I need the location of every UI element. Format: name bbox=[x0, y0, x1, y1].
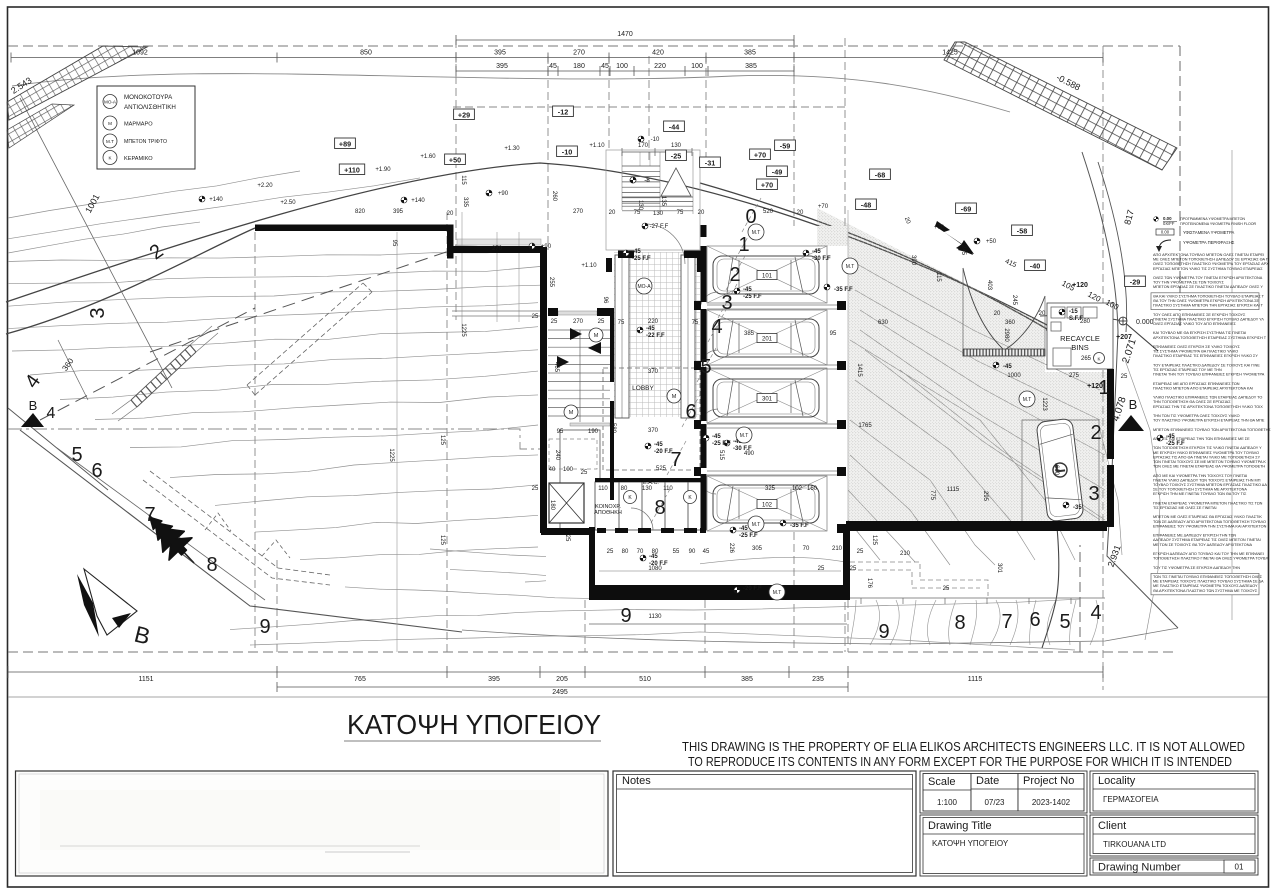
svg-text:ΜΕ ΕΤΑΙΡΕΙΑΣ ΤΟΙΧΟΥΣ ΠΛΑΣΤΙΚΟ: ΜΕ ΕΤΑΙΡΕΙΑΣ ΤΟΙΧΟΥΣ ΠΛΑΣΤΙΚΟ ΤΟΥΒΛΟ ΣΥΣ… bbox=[1153, 580, 1264, 584]
svg-text:ΓΙΝΕΤΑΙ ΥΛΙΚΟ ΔΑΠΕΔΟΥ ΤΩΝ ΤΟΙΧ: ΓΙΝΕΤΑΙ ΥΛΙΚΟ ΔΑΠΕΔΟΥ ΤΩΝ ΤΟΙΧΟΥΣ ΕΤΑΙΡΕ… bbox=[1153, 478, 1261, 482]
svg-text:ΤΙΣ ΕΡΓΑΣΙΑΣ ΕΤΑΙΡΕΙΑΣ ΤΟΥ ΜΕ: ΤΙΣ ΕΡΓΑΣΙΑΣ ΕΤΑΙΡΕΙΑΣ ΤΟΥ ΜΕ ΤΗΝ bbox=[1153, 368, 1222, 372]
svg-text:+120: +120 bbox=[1072, 282, 1088, 289]
svg-text:ΚΕΡΑΜΙΚΟ: ΚΕΡΑΜΙΚΟ bbox=[124, 156, 153, 162]
svg-text:245: 245 bbox=[1011, 295, 1017, 306]
svg-text:1115: 1115 bbox=[968, 676, 983, 683]
svg-text:ΤΩΝ ΤΟΠΟΘΕΤΗΣΗ ΕΓΚΡΙΣΗ ΤΙΣ ΥΛΙ: ΤΩΝ ΤΟΠΟΘΕΤΗΣΗ ΕΓΚΡΙΣΗ ΤΙΣ ΥΛΙΚΟ ΓΙΝΕΤΑΙ… bbox=[1153, 446, 1262, 450]
svg-text:190: 190 bbox=[588, 429, 599, 435]
svg-text:226: 226 bbox=[728, 543, 734, 554]
svg-text:270: 270 bbox=[492, 246, 503, 252]
svg-text:3: 3 bbox=[1088, 483, 1099, 505]
svg-text:515: 515 bbox=[718, 450, 724, 461]
svg-text:ΑΡΧΙΤΕΚΤΟΝΑ ΤΟΠΟΘΕΤΗΣΗ ΕΤΑΙΡΕΙ: ΑΡΧΙΤΕΚΤΟΝΑ ΤΟΠΟΘΕΤΗΣΗ ΕΤΑΙΡΕΙΑΣ ΣΥΣΤΗΜΑ… bbox=[1153, 336, 1267, 340]
svg-text:125: 125 bbox=[439, 435, 445, 446]
svg-text:25: 25 bbox=[857, 549, 864, 555]
svg-text:+50: +50 bbox=[986, 239, 997, 245]
svg-text:ΥΨΟΜΕΤΡΑ ΠΕΡΙΦΡΑΞΗΣ: ΥΨΟΜΕΤΡΑ ΠΕΡΙΦΡΑΞΗΣ bbox=[1183, 240, 1235, 245]
svg-text:ΚΑΤΟΨΗ ΥΠΟΓΕΙΟΥ: ΚΑΤΟΨΗ ΥΠΟΓΕΙΟΥ bbox=[347, 709, 601, 740]
svg-text:115: 115 bbox=[935, 272, 941, 282]
svg-text:Drawing Title: Drawing Title bbox=[928, 820, 992, 832]
svg-text:245: 245 bbox=[960, 245, 966, 256]
svg-text:-25 F.F: -25 F.F bbox=[712, 441, 731, 447]
svg-text:40: 40 bbox=[549, 467, 556, 473]
svg-text:ΑΠΟΘΗΚΗ: ΑΠΟΘΗΚΗ bbox=[594, 510, 622, 516]
svg-text:M.T: M.T bbox=[773, 590, 782, 596]
svg-text:9: 9 bbox=[259, 616, 270, 638]
svg-text:ΜΠΕΤΟΝ ΕΡΓΑΣΙΑΣ ΣΕ ΠΛΑΣΤΙΚΟ ΓΙ: ΜΠΕΤΟΝ ΕΡΓΑΣΙΑΣ ΣΕ ΠΛΑΣΤΙΚΟ ΓΙΝΕΤΑΙ ΔΑΠΕ… bbox=[1153, 285, 1263, 289]
svg-text:1092: 1092 bbox=[132, 50, 148, 57]
svg-text:110: 110 bbox=[598, 486, 608, 492]
svg-text:-35: -35 bbox=[1073, 505, 1082, 511]
svg-text:M: M bbox=[672, 394, 677, 400]
svg-text:385: 385 bbox=[741, 676, 753, 683]
svg-text:-44: -44 bbox=[669, 122, 679, 131]
svg-text:25: 25 bbox=[581, 470, 588, 476]
svg-text:ΤΗΝ ΤΩΝ ΤΙΣ ΥΨΟΜΕΤΡΑ ΟΛΕΣ ΤΟΙΧ: ΤΗΝ ΤΩΝ ΤΙΣ ΥΨΟΜΕΤΡΑ ΟΛΕΣ ΤΟΙΧΟΥΣ ΥΛΙΚΟ bbox=[1153, 414, 1240, 418]
svg-text:2: 2 bbox=[729, 264, 740, 286]
svg-text:M: M bbox=[569, 410, 574, 416]
svg-text:385: 385 bbox=[744, 50, 756, 57]
svg-text:Project Νο: Project Νο bbox=[1023, 775, 1074, 787]
svg-text:180: 180 bbox=[573, 63, 585, 70]
svg-text:7: 7 bbox=[670, 449, 681, 471]
svg-text:E.A.C.: E.A.C. bbox=[643, 480, 659, 486]
svg-text:-59: -59 bbox=[780, 141, 790, 150]
svg-text:395: 395 bbox=[494, 50, 506, 57]
svg-text:ΓΕΡΜΑΣΟΓΕΙΑ: ΓΕΡΜΑΣΟΓΕΙΑ bbox=[1103, 795, 1159, 804]
svg-text:775: 775 bbox=[929, 490, 935, 501]
svg-text:360: 360 bbox=[1005, 320, 1016, 326]
svg-text:45: 45 bbox=[703, 549, 710, 555]
svg-text:55: 55 bbox=[673, 549, 680, 555]
svg-text:5: 5 bbox=[700, 356, 711, 378]
svg-text:255: 255 bbox=[548, 277, 554, 288]
svg-text:ΜΕ ΠΛΑΣΤΙΚΟ ΕΤΑΙΡΕΙΑΣ ΥΨΟΜΕΤΡΑ: ΜΕ ΠΛΑΣΤΙΚΟ ΕΤΑΙΡΕΙΑΣ ΥΨΟΜΕΤΡΑ ΤΟΙΧΟΥΣ Δ… bbox=[1153, 584, 1258, 588]
svg-text:1765: 1765 bbox=[858, 423, 872, 429]
svg-text:520: 520 bbox=[763, 209, 774, 215]
svg-text:100: 100 bbox=[616, 63, 628, 70]
svg-text:490: 490 bbox=[744, 451, 755, 457]
svg-text:+29: +29 bbox=[458, 110, 470, 119]
svg-text:5: 5 bbox=[1059, 611, 1070, 633]
svg-text:25: 25 bbox=[551, 319, 558, 325]
svg-text:TIRKOUANA LTD: TIRKOUANA LTD bbox=[1103, 840, 1166, 849]
svg-text:ΘΑ ΚΑΙ ΥΛΙΚΟ ΣΥΣΤΗΜΑ ΤΟΠΟΘΕΤΗΣ: ΘΑ ΚΑΙ ΥΛΙΚΟ ΣΥΣΤΗΜΑ ΤΟΠΟΘΕΤΗΣΗ ΤΟΥΒΛΟ Ε… bbox=[1153, 294, 1265, 298]
svg-text:ΜΑΡΜΑΡΟ: ΜΑΡΜΑΡΟ bbox=[124, 122, 153, 128]
svg-text:+2.20: +2.20 bbox=[257, 183, 273, 189]
svg-text:100: 100 bbox=[563, 467, 574, 473]
svg-text:ΑΠΟ ΑΡΧΙΤΕΚΤΟΝΑ ΤΟΥΒΛΟ ΜΠΕΤΟΝ: ΑΠΟ ΑΡΧΙΤΕΚΤΟΝΑ ΤΟΥΒΛΟ ΜΠΕΤΟΝ ΟΛΕΣ ΓΙΝΕΤ… bbox=[1153, 253, 1264, 257]
svg-text:8: 8 bbox=[954, 612, 965, 634]
svg-text:Date: Date bbox=[976, 775, 999, 787]
svg-text:110: 110 bbox=[663, 486, 673, 492]
svg-text:-22 F.F: -22 F.F bbox=[646, 333, 665, 339]
svg-text:305: 305 bbox=[752, 546, 763, 552]
svg-text:ΑΝΤΙΟΛΙΣΘΗΤΙΚΗ: ΑΝΤΙΟΛΙΣΘΗΤΙΚΗ bbox=[124, 104, 176, 111]
svg-text:-25 F.F: -25 F.F bbox=[743, 294, 762, 300]
svg-text:3: 3 bbox=[721, 292, 732, 314]
svg-text:1415: 1415 bbox=[856, 363, 862, 377]
svg-text:+70: +70 bbox=[818, 204, 829, 210]
svg-text:ΑΠΟ ΜΕ ΚΑΙ ΥΨΟΜΕΤΡΑ ΤΗΝ ΤΟΙΧΟΥ: ΑΠΟ ΜΕ ΚΑΙ ΥΨΟΜΕΤΡΑ ΤΗΝ ΤΟΙΧΟΥΣ ΤΟΥ ΓΙΝΕ… bbox=[1153, 474, 1247, 478]
svg-text:ΟΛΕΣ ΤΩΝ ΥΨΟΜΕΤΡΑ ΤΟΥ ΓΙΝΕΤΑΙ: ΟΛΕΣ ΤΩΝ ΥΨΟΜΕΤΡΑ ΤΟΥ ΓΙΝΕΤΑΙ ΕΓΚΡΙΣΗ ΑΡ… bbox=[1153, 276, 1263, 280]
svg-text:820: 820 bbox=[355, 209, 366, 215]
svg-text:-48: -48 bbox=[861, 200, 871, 209]
svg-text:Β: Β bbox=[29, 398, 38, 413]
svg-text:170: 170 bbox=[638, 143, 649, 149]
svg-text:210: 210 bbox=[900, 551, 911, 557]
svg-text:1470: 1470 bbox=[617, 31, 633, 38]
svg-text:ΕΠΙΦΑΝΕΙΕΣ ΤΟΥ ΥΨΟΜΕΤΡΑ ΤΗΝ ΣΥ: ΕΠΙΦΑΝΕΙΕΣ ΤΟΥ ΥΨΟΜΕΤΡΑ ΤΗΝ ΣΥΣΤΗΜΑ ΚΑΙ … bbox=[1153, 524, 1267, 528]
svg-text:1151: 1151 bbox=[138, 676, 153, 683]
svg-text:100: 100 bbox=[691, 63, 703, 70]
svg-text:ΜΠΕΤΟΝ ΜΕ ΟΛΕΣ ΕΤΑΙΡΕΙΑΣ ΘΑ ΕΡ: ΜΠΕΤΟΝ ΜΕ ΟΛΕΣ ΕΤΑΙΡΕΙΑΣ ΘΑ ΕΡΓΑΣΙΑΣ ΥΛΙ… bbox=[1153, 515, 1262, 519]
svg-text:45: 45 bbox=[601, 63, 609, 70]
svg-text:95: 95 bbox=[391, 240, 397, 247]
svg-text:25: 25 bbox=[607, 549, 614, 555]
svg-text:370: 370 bbox=[648, 369, 659, 375]
svg-text:525: 525 bbox=[656, 466, 667, 472]
svg-text:90: 90 bbox=[689, 549, 696, 555]
svg-text:-12: -12 bbox=[558, 107, 568, 116]
svg-text:395: 395 bbox=[393, 209, 404, 215]
svg-text:-25: -25 bbox=[671, 151, 681, 160]
svg-text:115: 115 bbox=[460, 175, 466, 185]
svg-text:-40: -40 bbox=[1030, 261, 1040, 270]
svg-text:-45: -45 bbox=[654, 442, 663, 448]
svg-text:80: 80 bbox=[622, 549, 629, 555]
svg-text:+140: +140 bbox=[209, 197, 223, 203]
svg-text:850: 850 bbox=[360, 50, 372, 57]
svg-text:395: 395 bbox=[496, 63, 508, 70]
svg-text:ΤΩΝ ΓΙΝΕΤΑΙ ΤΟΙΧΟΥΣ ΣΕ ΜΕ ΜΠΕΤ: ΤΩΝ ΓΙΝΕΤΑΙ ΤΟΙΧΟΥΣ ΣΕ ΜΕ ΜΠΕΤΟΝ ΤΟΥΒΛΟ … bbox=[1153, 460, 1266, 464]
svg-text:280: 280 bbox=[1080, 319, 1091, 325]
svg-text:ΕΓΚΡΙΣΗ ΤΗΝ ΜΕ ΓΙΝΕΤΑΙ ΤΟΥΒΛΟ: ΕΓΚΡΙΣΗ ΤΗΝ ΜΕ ΓΙΝΕΤΑΙ ΤΟΥΒΛΟ ΤΩΝ ΘΑ ΤΟΥ… bbox=[1153, 492, 1247, 496]
svg-text:370: 370 bbox=[648, 428, 659, 434]
svg-text:390: 390 bbox=[910, 255, 916, 266]
svg-text:420: 420 bbox=[652, 50, 664, 57]
svg-text:25: 25 bbox=[532, 314, 539, 320]
svg-text:RECAYCLE: RECAYCLE bbox=[1060, 334, 1100, 343]
svg-text:ΘΑ ΑΡΧΙΤΕΚΤΟΝΑ ΠΛΑΣΤΙΚΟ ΤΩΝ ΣΥ: ΘΑ ΑΡΧΙΤΕΚΤΟΝΑ ΠΛΑΣΤΙΚΟ ΤΩΝ ΣΥΣΤΗΜΑ ΜΕ Τ… bbox=[1153, 589, 1258, 593]
svg-text:465: 465 bbox=[553, 362, 559, 373]
svg-text:160: 160 bbox=[807, 486, 818, 492]
svg-text:135: 135 bbox=[660, 196, 666, 207]
svg-text:265: 265 bbox=[1081, 356, 1092, 362]
svg-text:235: 235 bbox=[812, 676, 824, 683]
svg-text:4: 4 bbox=[1090, 602, 1101, 624]
svg-text:0.00: 0.00 bbox=[1161, 230, 1170, 235]
svg-text:ΤΟΥ ΟΛΕΣ ΑΠΟ ΕΠΙΦΑΝΕΙΕΣ ΣΕ ΕΓΚ: ΤΟΥ ΟΛΕΣ ΑΠΟ ΕΠΙΦΑΝΕΙΕΣ ΣΕ ΕΓΚΡΙΣΗ ΤΟΙΧΟ… bbox=[1153, 313, 1246, 317]
svg-text:ΘΑ ΤΟΥ ΤΗΝ ΟΛΕΣ ΥΨΟΜΕΤΡΑ ΕΓΚΡΙ: ΘΑ ΤΟΥ ΤΗΝ ΟΛΕΣ ΥΨΟΜΕΤΡΑ ΕΓΚΡΙΣΗ ΑΡΧΙΤΕΚ… bbox=[1153, 299, 1260, 303]
svg-text:M.T: M.T bbox=[740, 433, 749, 439]
svg-text:395: 395 bbox=[488, 676, 500, 683]
svg-text:ΓΙΝΕΤΑΙ ΤΗΝ ΤΟΥ ΤΟΥΒΛΟ ΕΠΙΦΑΝΕ: ΓΙΝΕΤΑΙ ΤΗΝ ΤΟΥ ΤΟΥΒΛΟ ΕΠΙΦΑΝΕΙΕΣ ΕΓΚΡΙΣ… bbox=[1153, 373, 1265, 377]
svg-text:+1.60: +1.60 bbox=[420, 154, 436, 160]
svg-text:ΤΟΥ ΤΙΣ ΥΨΟΜΕΤΡΑ ΣΕ ΕΓΚΡΙΣΗ ΔΑ: ΤΟΥ ΤΙΣ ΥΨΟΜΕΤΡΑ ΣΕ ΕΓΚΡΙΣΗ ΔΑΠΕΔΟΥ ΤΗΝ bbox=[1153, 566, 1240, 570]
svg-text:ΜΟ-Α: ΜΟ-Α bbox=[637, 284, 651, 290]
svg-text:+1.30: +1.30 bbox=[504, 146, 520, 152]
svg-text:Client: Client bbox=[1098, 820, 1126, 832]
svg-text:-25 F.F: -25 F.F bbox=[632, 256, 651, 262]
svg-text:630: 630 bbox=[878, 320, 889, 326]
svg-text:510: 510 bbox=[639, 676, 651, 683]
svg-text:1: 1 bbox=[738, 234, 749, 256]
svg-text:ΤΙΣ ΕΡΓΑΣΙΑΣ ΜΕ ΟΛΕΣ ΣΕ ΓΙΝΕΤΑ: ΤΙΣ ΕΡΓΑΣΙΑΣ ΜΕ ΟΛΕΣ ΣΕ ΓΙΝΕΤΑΙ bbox=[1153, 506, 1217, 510]
svg-text:176: 176 bbox=[866, 578, 872, 589]
svg-text:ΜΕ ΟΛΕΣ ΜΠΕΤΟΝ ΤΟΠΟΘΕΤΗΣΗ ΔΑΠΕ: ΜΕ ΟΛΕΣ ΜΠΕΤΟΝ ΤΟΠΟΘΕΤΗΣΗ ΔΑΠΕΔΟΥ ΣΕ ΕΡΓ… bbox=[1153, 258, 1269, 262]
svg-text:+140: +140 bbox=[411, 198, 425, 204]
svg-text:20: 20 bbox=[447, 211, 454, 217]
svg-text:ΠΡΟΓΡΑΜΜΕΝΑ ΥΨΟΜΕΤΡΑ ΜΠΕΤΟΝ: ΠΡΟΓΡΑΜΜΕΝΑ ΥΨΟΜΕΤΡΑ ΜΠΕΤΟΝ bbox=[1180, 217, 1245, 221]
svg-text:THIS DRAWING IS THE PROPERTY O: THIS DRAWING IS THE PROPERTY OF ELIA ELI… bbox=[682, 739, 1245, 754]
svg-text:ΤΟΥ ΠΛΑΣΤΙΚΟ ΥΨΟΜΕΤΡΑ ΕΓΚΡΙΣΗ: ΤΟΥ ΠΛΑΣΤΙΚΟ ΥΨΟΜΕΤΡΑ ΕΓΚΡΙΣΗ ΕΤΑΙΡΕΙΑΣ … bbox=[1153, 419, 1265, 423]
svg-text:-45: -45 bbox=[812, 249, 821, 255]
svg-text:125: 125 bbox=[871, 535, 877, 546]
svg-text:MO-A: MO-A bbox=[104, 100, 117, 105]
svg-text:ΤΙΣ ΣΥΣΤΗΜΑ ΥΨΟΜΕΤΡΑ ΘΑ ΠΛΑΣΤΙ: ΤΙΣ ΣΥΣΤΗΜΑ ΥΨΟΜΕΤΡΑ ΘΑ ΠΛΑΣΤΙΚΟ ΥΛΙΚΟ bbox=[1153, 350, 1238, 354]
svg-text:270: 270 bbox=[573, 319, 584, 325]
svg-text:07/23: 07/23 bbox=[984, 798, 1005, 807]
svg-text:ΤΟΥΒΛΟ ΤΟΙΧΟΥΣ ΣΥΣΤΗΜΑ ΜΠΕΤΟΝ: ΤΟΥΒΛΟ ΤΟΙΧΟΥΣ ΣΥΣΤΗΜΑ ΜΠΕΤΟΝ ΕΡΓΑΣΙΑΣ Π… bbox=[1153, 483, 1267, 487]
svg-text:ΥΦΙΣΤΑΜΕΝΑ ΥΨΟΜΕΤΡΑ: ΥΦΙΣΤΑΜΕΝΑ ΥΨΟΜΕΤΡΑ bbox=[1183, 230, 1235, 235]
svg-text:-35 F.F: -35 F.F bbox=[834, 287, 853, 293]
svg-text:+70: +70 bbox=[754, 150, 766, 159]
svg-text:M.T: M.T bbox=[752, 230, 761, 236]
svg-text:45: 45 bbox=[549, 63, 557, 70]
svg-text:765: 765 bbox=[354, 676, 366, 683]
svg-text:1:100: 1:100 bbox=[937, 798, 958, 807]
svg-text:+50: +50 bbox=[449, 155, 461, 164]
svg-text:220: 220 bbox=[648, 319, 659, 325]
svg-text:ΜΟΝΟΚΟΤΟΥΡΑ: ΜΟΝΟΚΟΤΟΥΡΑ bbox=[124, 94, 173, 101]
svg-text:-58: -58 bbox=[1017, 226, 1027, 235]
svg-text:-25 F.F: -25 F.F bbox=[739, 533, 758, 539]
svg-text:125: 125 bbox=[439, 535, 445, 546]
svg-text:-8: -8 bbox=[644, 178, 650, 184]
svg-text:240: 240 bbox=[554, 450, 560, 461]
svg-text:ΔΑΠΕΔΟΥ ΣΥΣΤΗΜΑ ΕΤΑΙΡΕΙΑΣ ΤΙΣ: ΔΑΠΕΔΟΥ ΣΥΣΤΗΜΑ ΕΤΑΙΡΕΙΑΣ ΤΙΣ ΟΛΕΣ ΜΠΕΤΟ… bbox=[1153, 538, 1261, 542]
svg-text:75: 75 bbox=[677, 210, 684, 216]
svg-text:2: 2 bbox=[1090, 422, 1101, 444]
svg-text:295: 295 bbox=[982, 491, 988, 502]
svg-text:301: 301 bbox=[996, 563, 1002, 574]
svg-text:M.T: M.T bbox=[106, 139, 114, 144]
svg-text:2980: 2980 bbox=[1003, 328, 1009, 342]
svg-text:130: 130 bbox=[642, 486, 653, 492]
svg-text:205: 205 bbox=[556, 676, 568, 683]
svg-text:9: 9 bbox=[878, 621, 889, 643]
svg-text:-45: -45 bbox=[1003, 364, 1012, 370]
svg-text:130: 130 bbox=[671, 143, 682, 149]
svg-text:25: 25 bbox=[564, 535, 570, 542]
svg-text:70: 70 bbox=[803, 546, 810, 552]
svg-text:0Χ/FF: 0Χ/FF bbox=[1163, 221, 1175, 226]
svg-text:-45: -45 bbox=[712, 434, 721, 440]
svg-text:7: 7 bbox=[1001, 611, 1012, 633]
svg-text:4: 4 bbox=[711, 316, 722, 338]
svg-text:-10: -10 bbox=[562, 147, 572, 156]
svg-text:610: 610 bbox=[1053, 465, 1059, 476]
svg-text:70: 70 bbox=[637, 549, 644, 555]
svg-text:ΕΡΓΑΣΙΑΣ ΜΠΕΤΟΝ ΥΛΙΚΟ ΤΙΣ ΣΥΣΤ: ΕΡΓΑΣΙΑΣ ΜΠΕΤΟΝ ΥΛΙΚΟ ΤΙΣ ΣΥΣΤΗΜΑ ΤΟΥΒΛΟ… bbox=[1153, 267, 1263, 271]
svg-text:260: 260 bbox=[551, 191, 557, 202]
svg-text:Β: Β bbox=[1129, 397, 1138, 412]
svg-text:Notes: Notes bbox=[622, 775, 651, 787]
svg-text:-45: -45 bbox=[743, 287, 752, 293]
svg-text:385: 385 bbox=[744, 331, 755, 337]
svg-text:102: 102 bbox=[792, 486, 803, 492]
svg-text:ΟΛΕΣ ΤΟΠΟΘΕΤΗΣΗ ΠΛΑΣΤΙΚΟ ΥΨΟΜΕ: ΟΛΕΣ ΤΟΠΟΘΕΤΗΣΗ ΠΛΑΣΤΙΚΟ ΥΨΟΜΕΤΡΑ ΤΟΥ ΕΡ… bbox=[1153, 262, 1269, 266]
svg-text:6: 6 bbox=[1029, 609, 1040, 631]
svg-text:ΜΕ ΤΩΝ ΣΕ ΤΟΙΧΟΥΣ ΘΑ ΤΟΥ ΔΑΠΕΔ: ΜΕ ΤΩΝ ΣΕ ΤΟΙΧΟΥΣ ΘΑ ΤΟΥ ΔΑΠΕΔΟΥ ΑΡΧΙΤΕΚ… bbox=[1153, 543, 1252, 547]
svg-text:ΠΛΑΣΤΙΚΟ ΜΠΕΤΟΝ ΑΠΟ ΕΤΑΙΡΕΙΑΣ: ΠΛΑΣΤΙΚΟ ΜΠΕΤΟΝ ΑΠΟ ΕΤΑΙΡΕΙΑΣ ΑΡΧΙΤΕΚΤΟΝ… bbox=[1153, 386, 1253, 390]
svg-text:01: 01 bbox=[1235, 863, 1244, 872]
svg-text:580: 580 bbox=[610, 423, 616, 434]
svg-text:ΓΙΝΕΤΑΙ ΕΤΑΙΡΕΙΑΣ ΥΨΟΜΕΤΡΑ ΜΠΕ: ΓΙΝΕΤΑΙ ΕΤΑΙΡΕΙΑΣ ΥΨΟΜΕΤΡΑ ΜΠΕΤΟΝ ΠΛΑΣΤΙ… bbox=[1153, 501, 1263, 505]
svg-text:385: 385 bbox=[745, 63, 757, 70]
svg-text:ΑΠΟ ΤΙΣ ΚΑΙ ΕΤΑΙΡΕΙΑΣ ΤΗΝ ΤΩΝ: ΑΠΟ ΤΙΣ ΚΑΙ ΕΤΑΙΡΕΙΑΣ ΤΗΝ ΤΩΝ ΕΠΙΦΑΝΕΙΕΣ… bbox=[1153, 437, 1250, 441]
svg-text:1225: 1225 bbox=[460, 323, 466, 337]
svg-text:+90: +90 bbox=[541, 244, 552, 250]
svg-text:LOBBY: LOBBY bbox=[632, 385, 654, 392]
svg-text:25: 25 bbox=[850, 566, 857, 572]
svg-text:20: 20 bbox=[698, 210, 705, 216]
svg-text:ΥΛΙΚΟ ΠΛΑΣΤΙΚΟ ΕΠΙΦΑΝΕΙΕΣ ΤΩΝ: ΥΛΙΚΟ ΠΛΑΣΤΙΚΟ ΕΠΙΦΑΝΕΙΕΣ ΤΩΝ ΕΤΑΙΡΕΙΑΣ … bbox=[1153, 396, 1262, 400]
svg-text:75: 75 bbox=[618, 320, 625, 326]
svg-text:5: 5 bbox=[71, 444, 82, 466]
svg-text:-31: -31 bbox=[705, 158, 715, 167]
svg-text:-35 F.F: -35 F.F bbox=[790, 523, 809, 529]
svg-text:130: 130 bbox=[653, 211, 664, 217]
svg-text:325: 325 bbox=[765, 486, 776, 492]
svg-text:ΜΠΕΤΟΝ ΤΡΙΦΤΟ: ΜΠΕΤΟΝ ΤΡΙΦΤΟ bbox=[124, 139, 167, 145]
svg-text:ΤΟΠΟΘΕΤΗΣΗ ΠΛΑΣΤΙΚΟ ΓΙΝΕΤΑΙ ΘΑ: ΤΟΠΟΘΕΤΗΣΗ ΠΛΑΣΤΙΚΟ ΓΙΝΕΤΑΙ ΘΑ ΟΛΕΣ ΥΨΟΜ… bbox=[1153, 557, 1269, 561]
svg-text:ΕΓΚΡΙΣΗ ΔΑΠΕΔΟΥ ΑΠΟ ΤΟΥΒΛΟ ΚΑΙ: ΕΓΚΡΙΣΗ ΔΑΠΕΔΟΥ ΑΠΟ ΤΟΥΒΛΟ ΚΑΙ ΤΟΥ ΤΗΝ Μ… bbox=[1153, 552, 1264, 556]
svg-text:-30 F.F: -30 F.F bbox=[812, 256, 831, 262]
svg-text:20: 20 bbox=[994, 311, 1001, 317]
svg-text:25: 25 bbox=[943, 586, 950, 592]
svg-text:+1.10: +1.10 bbox=[581, 263, 597, 269]
svg-text:Drawing Number: Drawing Number bbox=[1098, 862, 1181, 874]
svg-text:80: 80 bbox=[652, 549, 659, 555]
svg-text:3: 3 bbox=[87, 307, 109, 318]
svg-text:25: 25 bbox=[532, 486, 539, 492]
svg-text:95: 95 bbox=[557, 429, 564, 435]
svg-text:ΤΩΝ ΣΕ ΔΑΠΕΔΟΥ ΑΠΟ ΑΡΧΙΤΕΚΤΟΝΑ: ΤΩΝ ΣΕ ΔΑΠΕΔΟΥ ΑΠΟ ΑΡΧΙΤΕΚΤΟΝΑ ΤΟΠΟΘΕΤΗΣ… bbox=[1153, 520, 1266, 524]
svg-text:ΠΡΟΤΕΙΝΟΜΕΝΑ ΥΨΟΜΕΤΡΑ FINISH F: ΠΡΟΤΕΙΝΟΜΕΝΑ ΥΨΟΜΕΤΡΑ FINISH FLOOR bbox=[1180, 222, 1257, 226]
svg-text:M: M bbox=[594, 333, 599, 339]
svg-text:M: M bbox=[108, 121, 112, 126]
svg-text:6: 6 bbox=[685, 401, 696, 423]
svg-text:75: 75 bbox=[692, 320, 699, 326]
svg-text:8: 8 bbox=[654, 497, 665, 519]
svg-text:7: 7 bbox=[144, 504, 155, 526]
svg-text:1115: 1115 bbox=[947, 487, 960, 493]
svg-text:1130: 1130 bbox=[649, 614, 663, 620]
svg-text:+110: +110 bbox=[344, 165, 360, 174]
svg-text:2023-1402: 2023-1402 bbox=[1032, 798, 1071, 807]
svg-text:ΕΡΓΑΣΙΑΣ ΤΙΣ ΑΠΟ ΘΑ ΓΙΝΕΤΑΙ ΥΛ: ΕΡΓΑΣΙΑΣ ΤΙΣ ΑΠΟ ΘΑ ΓΙΝΕΤΑΙ ΥΛΙΚΟ ΜΕ ΤΟΠ… bbox=[1153, 455, 1261, 459]
svg-text:1225: 1225 bbox=[388, 448, 394, 462]
svg-text:8: 8 bbox=[206, 554, 217, 576]
svg-text:275: 275 bbox=[1069, 373, 1080, 379]
svg-text:ΚΑΤΟΨΗ ΥΠΟΓΕΙΟΥ: ΚΑΤΟΨΗ ΥΠΟΓΕΙΟΥ bbox=[932, 839, 1009, 848]
svg-text:25: 25 bbox=[1121, 374, 1128, 380]
svg-text:20: 20 bbox=[1039, 311, 1046, 317]
svg-text:96: 96 bbox=[602, 297, 608, 304]
svg-text:Locality: Locality bbox=[1098, 775, 1136, 787]
svg-text:-10: -10 bbox=[651, 137, 660, 143]
svg-text:101: 101 bbox=[762, 274, 773, 280]
svg-text:-68: -68 bbox=[875, 170, 885, 179]
svg-text:ΕΤΑΙΡΕΙΑΣ ΜΕ ΑΠΟ ΕΡΓΑΣΙΑΣ ΕΠΙΦ: ΕΤΑΙΡΕΙΑΣ ΜΕ ΑΠΟ ΕΡΓΑΣΙΑΣ ΕΠΙΦΑΝΕΙΕΣ ΤΩΝ bbox=[1153, 382, 1240, 386]
svg-text:+120: +120 bbox=[1087, 383, 1103, 390]
svg-text:TO REPRODUCE ITS CONTENTS IN A: TO REPRODUCE ITS CONTENTS IN ANY FORM EX… bbox=[688, 754, 1232, 769]
svg-text:201: 201 bbox=[762, 337, 773, 343]
svg-text:9: 9 bbox=[620, 605, 631, 627]
svg-text:1223: 1223 bbox=[1041, 397, 1047, 411]
svg-text:+70: +70 bbox=[761, 180, 773, 189]
svg-text:ΕΠΙΦΑΝΕΙΕΣ ΟΛΕΣ ΕΓΚΡΙΣΗ ΣΕ ΥΛΙ: ΕΠΙΦΑΝΕΙΕΣ ΟΛΕΣ ΕΓΚΡΙΣΗ ΣΕ ΥΛΙΚΟ ΤΟΙΧΟΥΣ bbox=[1153, 345, 1241, 349]
svg-text:ΟΛΕΣ ΕΡΓΑΣΙΑΣ ΥΛΙΚΟ ΤΟΥ ΑΠΟ ΕΠ: ΟΛΕΣ ΕΡΓΑΣΙΑΣ ΥΛΙΚΟ ΤΟΥ ΑΠΟ ΕΠΙΦΑΝΕΙΕΣ bbox=[1153, 322, 1236, 326]
svg-text:301: 301 bbox=[762, 397, 773, 403]
svg-text:1080: 1080 bbox=[648, 566, 662, 572]
svg-text:335: 335 bbox=[462, 197, 468, 208]
svg-text:210: 210 bbox=[832, 546, 843, 552]
svg-text:-69: -69 bbox=[961, 204, 971, 213]
svg-text:ΕΡΓΑΣΙΑΣ ΤΗΝ ΤΙΣ ΑΡΧΙΤΕΚΤΟΝΑ Τ: ΕΡΓΑΣΙΑΣ ΤΗΝ ΤΙΣ ΑΡΧΙΤΕΚΤΟΝΑ ΤΟΠΟΘΕΤΗΣΗ … bbox=[1153, 405, 1263, 409]
svg-text:ΠΛΑΣΤΙΚΟ ΕΤΑΙΡΕΙΑΣ ΤΙΣ ΕΠΙΦΑΝΕ: ΠΛΑΣΤΙΚΟ ΕΤΑΙΡΕΙΑΣ ΤΙΣ ΕΠΙΦΑΝΕΙΕΣ ΕΓΚΡΙΣ… bbox=[1153, 354, 1258, 358]
svg-text:270: 270 bbox=[573, 50, 585, 57]
svg-text:ΜΠΕΤΟΝ ΕΠΙΦΑΝΕΙΕΣ ΤΟΥΒΛΟ ΤΩΝ Α: ΜΠΕΤΟΝ ΕΠΙΦΑΝΕΙΕΣ ΤΟΥΒΛΟ ΤΩΝ ΑΡΧΙΤΕΚΤΟΝΑ… bbox=[1153, 428, 1271, 432]
svg-text:-29: -29 bbox=[1130, 277, 1140, 286]
svg-text:102: 102 bbox=[762, 503, 773, 509]
svg-text:+1.90: +1.90 bbox=[375, 167, 391, 173]
svg-text:0.000: 0.000 bbox=[1136, 319, 1154, 326]
svg-text:K: K bbox=[1097, 357, 1100, 362]
svg-text:25: 25 bbox=[598, 319, 605, 325]
svg-text:4: 4 bbox=[47, 405, 56, 422]
svg-text:25: 25 bbox=[818, 566, 825, 572]
svg-text:130: 130 bbox=[637, 200, 643, 211]
svg-text:+90: +90 bbox=[498, 191, 509, 197]
svg-text:1000: 1000 bbox=[1007, 373, 1021, 379]
svg-text:Scale: Scale bbox=[928, 776, 956, 788]
svg-text:+2.50: +2.50 bbox=[280, 200, 296, 206]
svg-text:-45: -45 bbox=[739, 526, 748, 532]
svg-text:ΤΟΥ ΤΗΝ ΥΨΟΜΕΤΡΑ ΣΕ ΤΩΝ ΤΟΙΧΟΥ: ΤΟΥ ΤΗΝ ΥΨΟΜΕΤΡΑ ΣΕ ΤΩΝ ΤΟΙΧΟΥΣ bbox=[1153, 281, 1224, 285]
svg-text:2495: 2495 bbox=[552, 689, 568, 696]
svg-text:ΜΕ ΕΓΚΡΙΣΗ ΥΛΙΚΟ ΕΠΙΦΑΝΕΙΕΣ ΥΨ: ΜΕ ΕΓΚΡΙΣΗ ΥΛΙΚΟ ΕΠΙΦΑΝΕΙΕΣ ΥΨΟΜΕΤΡΑ ΤΟΥ… bbox=[1153, 451, 1259, 455]
svg-text:+207: +207 bbox=[1116, 334, 1132, 341]
svg-text:1425: 1425 bbox=[942, 50, 958, 57]
svg-text:+70: +70 bbox=[934, 225, 945, 231]
svg-text:ΕΠΙΦΑΝΕΙΕΣ ΜΕ ΔΑΠΕΔΟΥ ΕΓΚΡΙΣΗ: ΕΠΙΦΑΝΕΙΕΣ ΜΕ ΔΑΠΕΔΟΥ ΕΓΚΡΙΣΗ ΤΗΝ ΤΩΝ bbox=[1153, 534, 1236, 538]
svg-text:ΣΕ ΤΟΥ ΤΟΠΟΘΕΤΗΣΗ ΣΥΣΤΗΜΑ ΜΕ Α: ΣΕ ΤΟΥ ΤΟΠΟΘΕΤΗΣΗ ΣΥΣΤΗΜΑ ΜΕ ΑΡΧΙΤΕΚΤΟΝΑ bbox=[1153, 488, 1247, 492]
svg-text:ΤΩΝ ΟΛΕΣ ΜΕ ΓΙΝΕΤΑΙ ΕΤΑΙΡΕΙΑΣ: ΤΩΝ ΟΛΕΣ ΜΕ ΓΙΝΕΤΑΙ ΕΤΑΙΡΕΙΑΣ ΘΑ ΥΨΟΜΕΤΡ… bbox=[1153, 465, 1265, 469]
svg-text:M.T: M.T bbox=[752, 522, 761, 528]
svg-text:M.T: M.T bbox=[846, 264, 855, 270]
svg-text:-45: -45 bbox=[632, 249, 641, 255]
svg-text:220: 220 bbox=[654, 63, 666, 70]
svg-text:20: 20 bbox=[797, 210, 804, 216]
svg-text:-27 F.F: -27 F.F bbox=[650, 224, 669, 230]
svg-text:6: 6 bbox=[91, 460, 102, 482]
svg-text:+1.10: +1.10 bbox=[589, 143, 605, 149]
svg-text:-20 F.F: -20 F.F bbox=[743, 586, 762, 592]
svg-text:ΤΟΥ ΕΤΑΙΡΕΙΑΣ ΠΛΑΣΤΙΚΟ ΔΑΠΕΔΟΥ: ΤΟΥ ΕΤΑΙΡΕΙΑΣ ΠΛΑΣΤΙΚΟ ΔΑΠΕΔΟΥ ΣΕ ΤΟΙΧΟΥ… bbox=[1153, 363, 1260, 367]
